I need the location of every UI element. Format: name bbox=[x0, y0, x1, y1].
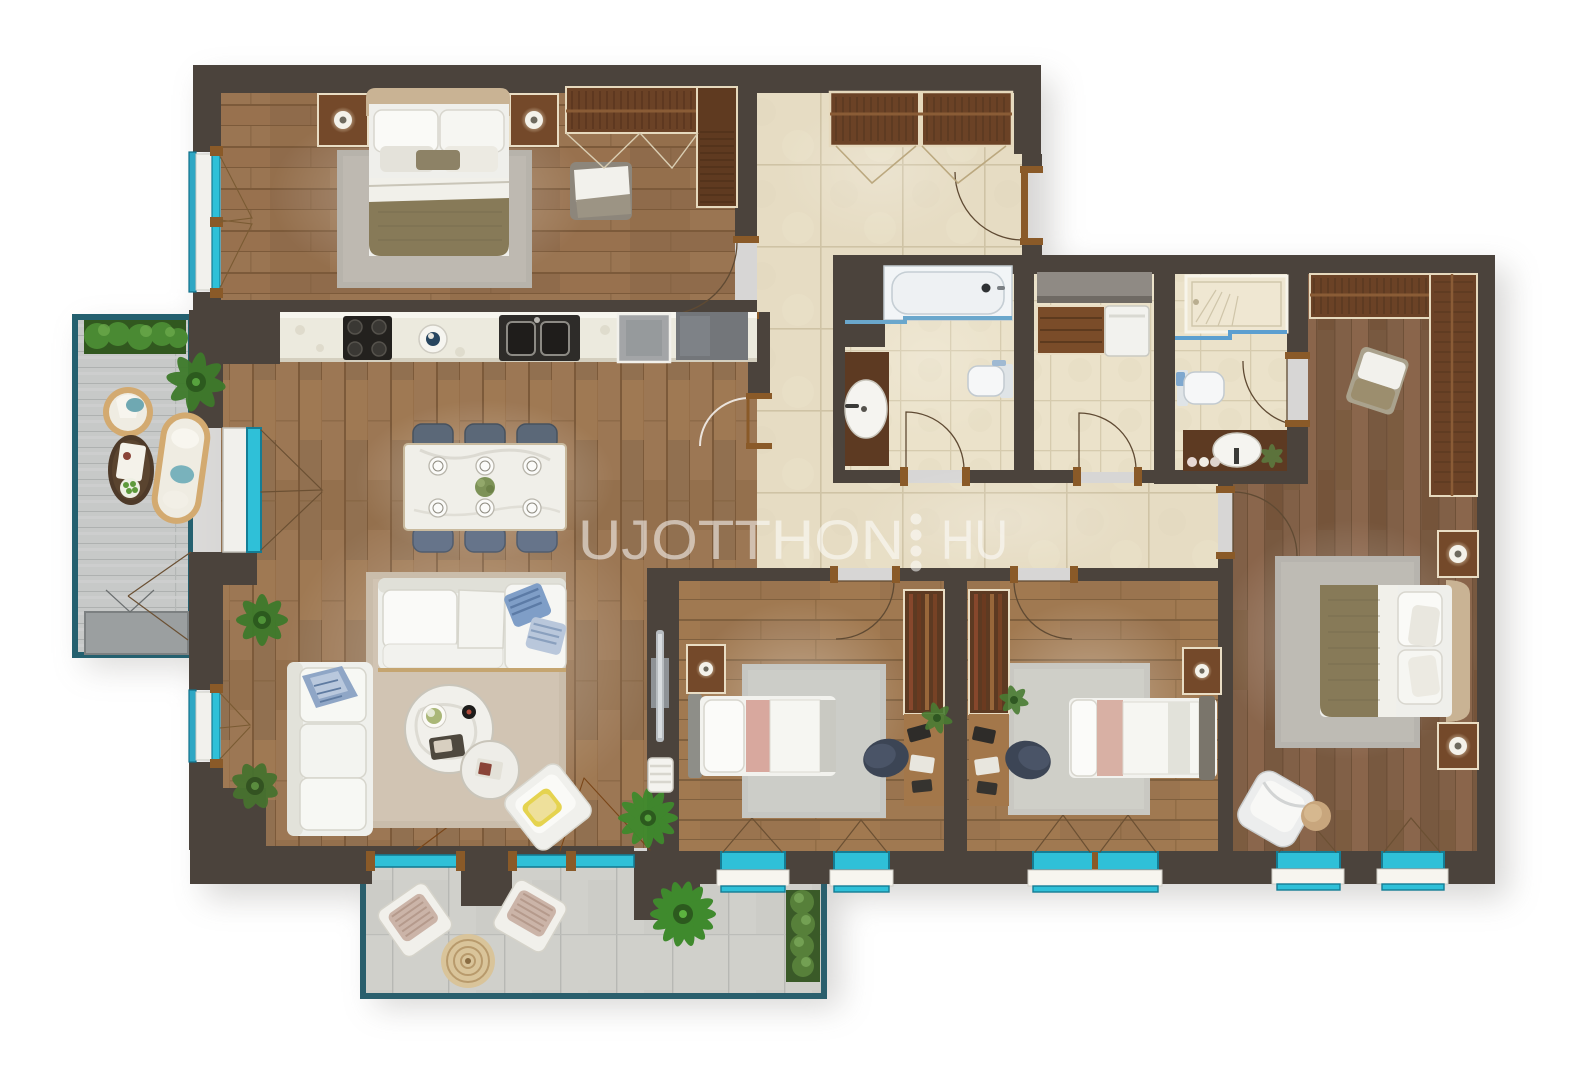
svg-text:HU: HU bbox=[941, 508, 1008, 571]
svg-text:UJOTTHON: UJOTTHON bbox=[578, 508, 904, 571]
